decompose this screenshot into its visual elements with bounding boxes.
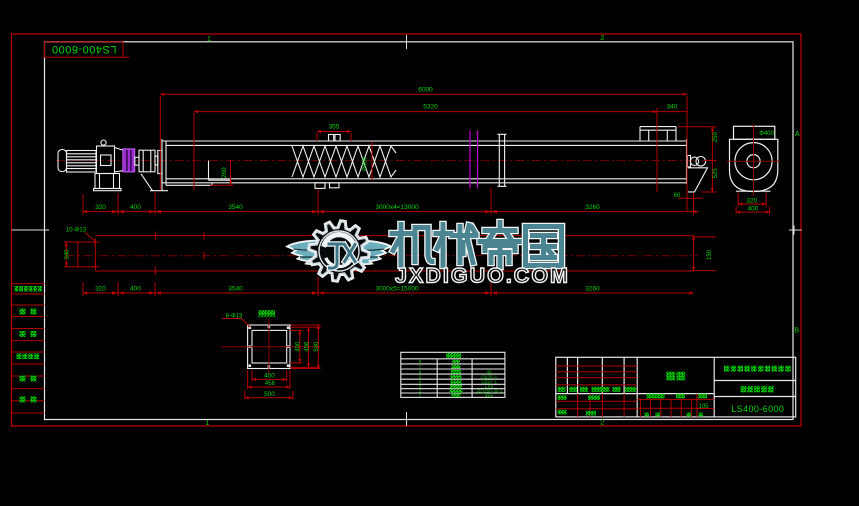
svg-text:400: 400: [296, 341, 302, 352]
svg-text:1: 1: [205, 418, 209, 427]
svg-text:LS400-6000: LS400-6000: [52, 43, 117, 55]
svg-text:3260: 3260: [585, 286, 600, 293]
svg-text:8-Φ13: 8-Φ13: [226, 314, 243, 320]
svg-text:340: 340: [65, 249, 71, 260]
svg-text:250: 250: [713, 132, 719, 143]
svg-text:1: 1: [207, 34, 211, 43]
svg-text:320: 320: [95, 286, 106, 293]
svg-text:LS400-6000: LS400-6000: [731, 404, 784, 414]
svg-text:400: 400: [130, 204, 141, 211]
svg-text:Φ400: Φ400: [363, 156, 369, 171]
svg-text:150: 150: [707, 249, 713, 260]
svg-text:400: 400: [264, 372, 275, 379]
svg-text:4kw: 4kw: [485, 393, 494, 398]
svg-text:525: 525: [713, 168, 719, 179]
svg-text:456: 456: [265, 381, 276, 387]
svg-text:2: 2: [600, 418, 604, 427]
svg-text:500: 500: [314, 341, 320, 352]
svg-text:2: 2: [600, 33, 604, 42]
svg-text:280: 280: [221, 167, 228, 178]
svg-text:A: A: [795, 129, 800, 138]
svg-text:3000x4=13000: 3000x4=13000: [375, 204, 419, 211]
svg-text:3260: 3260: [585, 204, 600, 211]
svg-text:340: 340: [667, 104, 678, 111]
svg-text:B: B: [794, 326, 799, 335]
svg-text:320: 320: [95, 204, 106, 211]
svg-text:105: 105: [698, 404, 709, 410]
svg-text:400: 400: [130, 286, 141, 293]
svg-text:5320: 5320: [423, 104, 438, 111]
svg-text:JXDIGUO.COM: JXDIGUO.COM: [395, 264, 570, 288]
svg-text:456: 456: [304, 341, 310, 352]
svg-text:320: 320: [746, 197, 757, 204]
svg-text:355: 355: [329, 124, 340, 131]
svg-text:1: 1: [419, 393, 422, 398]
svg-text:3540: 3540: [228, 286, 243, 293]
svg-text:60: 60: [674, 193, 681, 199]
svg-text:10-Φ13: 10-Φ13: [66, 228, 87, 234]
svg-text:500: 500: [264, 391, 275, 398]
svg-text:400: 400: [747, 205, 758, 212]
svg-text:6000: 6000: [418, 86, 433, 93]
svg-text:Φ400: Φ400: [759, 131, 774, 137]
svg-text:3540: 3540: [228, 204, 243, 211]
